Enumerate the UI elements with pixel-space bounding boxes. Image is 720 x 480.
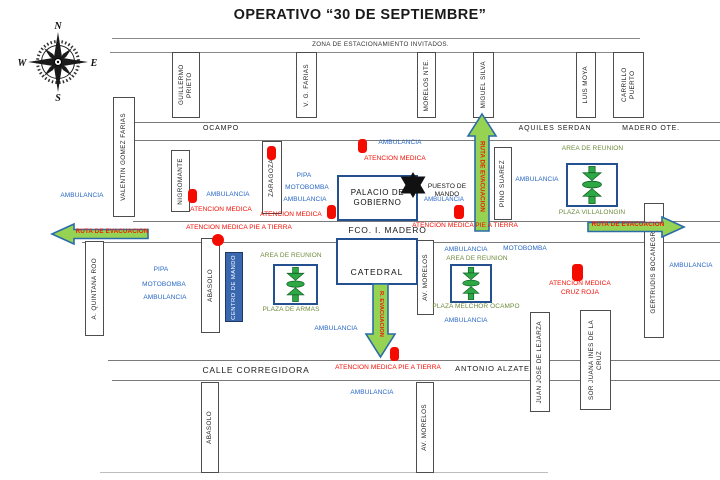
ambulancia-label: AMBULANCIA [279,196,331,203]
ambulancia-label: AMBULANCIA [310,325,362,332]
r-evacuacion-label: R. EVACUACION [368,285,394,343]
page-title: OPERATIVO “30 DE SEPTIEMBRE” [0,7,720,23]
street-line [135,140,720,141]
atencion-medica-cruz-roja-label: ATENCION MEDICA CRUZ ROJA [540,279,620,297]
plaza-de-armas-box [273,264,318,305]
street-box-nigromante: NIGROMANTE [171,150,190,212]
atencion-medica-label: ATENCION MEDICA [360,155,430,162]
medical-unit-marker [188,189,197,203]
medical-unit-marker [454,205,464,219]
street-box-miguel-silva: MIGUEL SILVA [473,52,494,118]
street-label-ocampo: OCAMPO [186,125,256,132]
ambulancia-label: AMBULANCIA [202,191,254,198]
operation-map: OPERATIVO “30 DE SEPTIEMBRE” N S E W ZON… [0,0,720,480]
ruta-de-evacuacion-label: RUTA DE EVACUACION [74,228,150,235]
svg-text:E: E [90,58,98,69]
street-box-guillermo-prieto: GUILLERMO PRIETO [172,52,200,118]
plaza-de-armas-label: PLAZA DE ARMAS [250,306,332,313]
street-label-aquiles-serdan: AQUILES SERDAN [505,125,605,132]
medical-unit-marker [327,205,336,219]
street-box-juan-jose-de-lejarza: JUAN JOSE DE LEJARZA [530,312,550,412]
street-box-av-morelos-bottom: AV. MORELOS [416,382,434,473]
ruta-de-evacuacion-label: RUTA DE EVACUACION [471,126,493,226]
street-box-luis-moya: LUIS MOYA [576,52,596,118]
ambulancia-label: AMBULANCIA [57,192,107,199]
svg-text:S: S [55,93,61,104]
centro-de-mando-box: CENTRO DE MANDO [225,252,243,322]
atencion-medica-label: ATENCION MEDICA [186,206,256,213]
street-label-calle-corregidora: CALLE CORREGIDORA [196,365,316,375]
street-line [100,472,548,473]
ambulancia-label: AMBULANCIA [440,317,492,324]
atencion-medica-pie-a-tierra-label: ATENCION MEDICA PIE A TIERRA [178,224,300,231]
atencion-medica-pie-a-tierra-label: ATENCION MEDICA PIE A TIERRA [329,364,447,371]
street-line [112,38,640,39]
ruta-de-evacuacion-label: RUTA DE EVACUACION [590,221,666,228]
street-box-abasolo-bottom: ABASOLO [201,382,219,473]
atencion-medica-label: ATENCION MEDICA [256,211,326,218]
street-box-abasolo-mid: ABASOLO [201,238,220,333]
street-box-valentin-gomez-farias: VALENTIN GOMEZ FARIAS [113,97,135,217]
plaza-villalongin-box [566,163,618,207]
assembly-point-icon [459,267,483,300]
street-box-morelos-nte: MORELOS NTE. [417,52,436,118]
area-de-reunion-label: AREA DE REUNION [550,145,635,152]
ambulancia-label: AMBULANCIA [440,246,492,253]
street-box-carrillo-puerto: CARRILLO PUERTO [613,52,644,118]
ambulancia-label: AMBULANCIA [512,176,562,183]
medical-unit-marker [390,347,399,361]
street-label-antonio-alzate: ANTONIO ALZATE [450,364,535,373]
ambulancia-label: AMBULANCIA [139,294,191,301]
plaza-melchor-ocampo-label: PLAZA MELCHOR OCAMPO [426,303,526,310]
motobomba-label: MOTOBOMBA [138,281,190,288]
pipa-label: PIPA [146,266,176,273]
area-de-reunion-label: AREA DE REUNION [250,252,332,259]
pipa-label: PIPA [291,172,317,179]
street-box-sor-juana-ines: SOR JUANA INES DE LA CRUZ [580,310,611,410]
assembly-point-icon [283,267,308,302]
assembly-point-icon [578,166,606,204]
street-box-a-quintana-roo: A. QUINTANA ROO [85,241,104,336]
medical-unit-marker [267,146,276,160]
ambulancia-label: AMBULANCIA [420,197,468,203]
ambulancia-label: AMBULANCIA [664,262,718,269]
street-label-zona-estacionamiento: ZONA DE ESTACIONAMIENTO INVITADOS. [308,41,453,48]
street-line [108,360,720,361]
svg-text:N: N [53,21,62,32]
svg-text:W: W [18,58,28,69]
motobomba-label: MOTOBOMBA [499,245,551,252]
atencion-medica-pie-a-tierra-label: ATENCION MEDICA PIE A TIERRA [404,222,526,229]
ambulancia-label: AMBULANCIA [346,389,398,396]
street-line [135,122,720,123]
motobomba-label: MOTOBOMBA [281,184,333,191]
ambulancia-label: AMBULANCIA [374,139,426,146]
medical-unit-marker [358,139,367,153]
area-de-reunion-label: AREA DE REUNION [442,255,512,262]
street-label-madero-ote: MADERO OTE. [612,125,690,132]
compass-rose-icon: N S E W [16,20,100,104]
plaza-melchor-ocampo-box [450,264,492,303]
catedral-building: CATEDRAL [336,238,418,285]
street-box-vg-farias: V. G. FARIAS [296,52,317,118]
medical-unit-marker [212,234,224,246]
